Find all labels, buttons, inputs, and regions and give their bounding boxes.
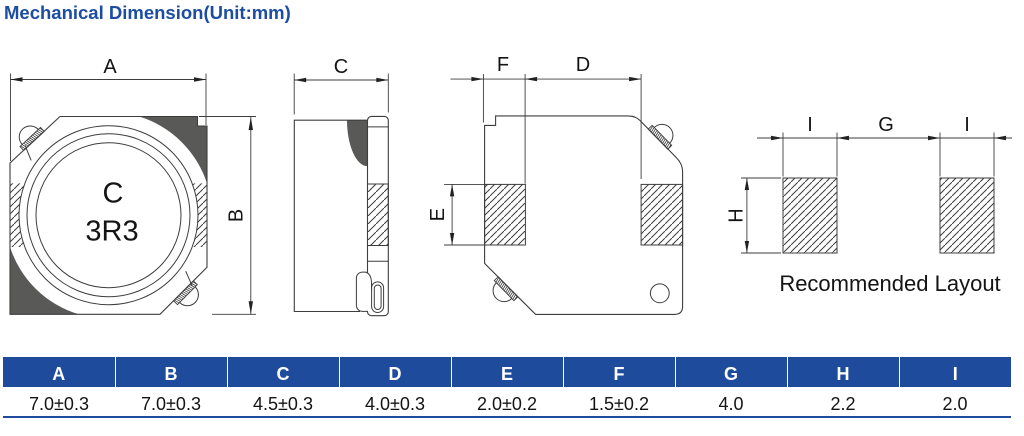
svg-text:D: D bbox=[576, 54, 590, 76]
svg-text:H: H bbox=[726, 208, 748, 222]
svg-text:C: C bbox=[334, 56, 348, 78]
svg-text:G: G bbox=[878, 114, 894, 136]
svg-text:Recommended Layout: Recommended Layout bbox=[779, 271, 1000, 296]
svg-text:E: E bbox=[427, 208, 449, 221]
svg-text:I: I bbox=[807, 114, 813, 136]
svg-text:F: F bbox=[497, 54, 509, 76]
svg-text:I: I bbox=[964, 114, 970, 136]
svg-text:3R3: 3R3 bbox=[85, 216, 138, 248]
svg-text:B: B bbox=[226, 209, 248, 222]
svg-text:A: A bbox=[103, 56, 117, 78]
svg-text:C: C bbox=[103, 178, 124, 210]
